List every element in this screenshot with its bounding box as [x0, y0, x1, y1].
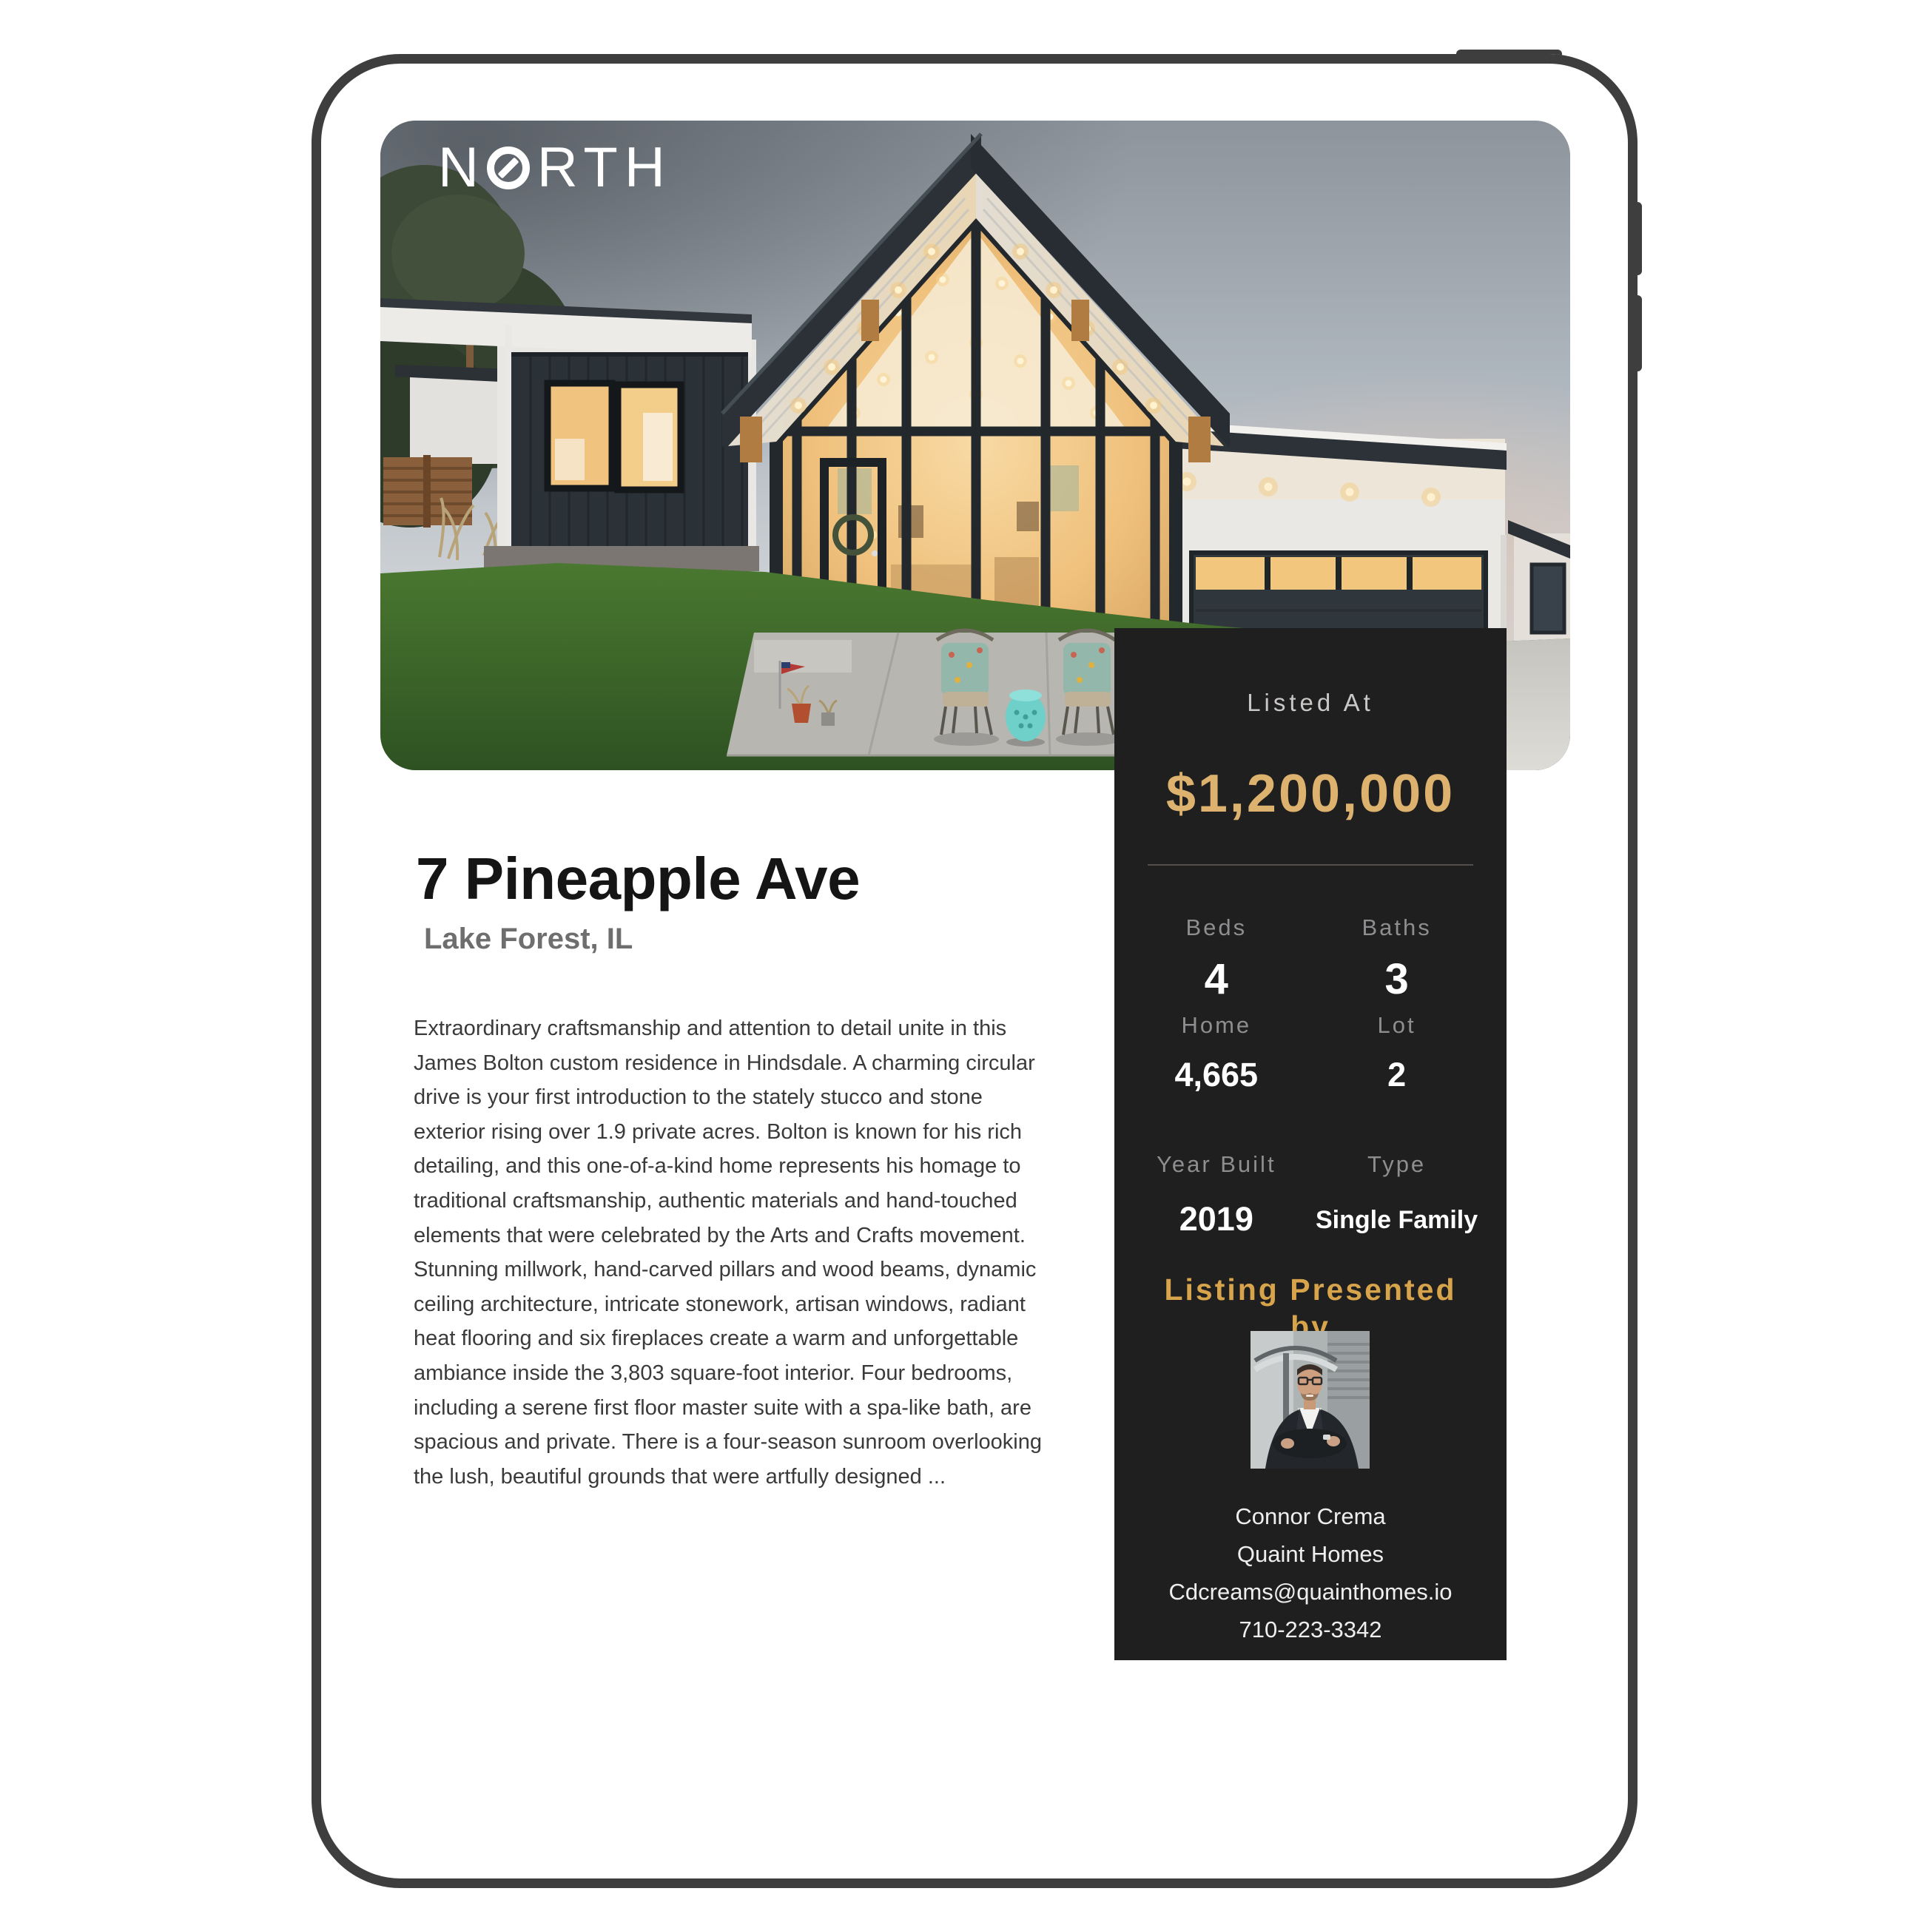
stat-label-lot: Lot — [1302, 1010, 1490, 1041]
stat-value-baths: 3 — [1302, 954, 1490, 1005]
wood-fence — [383, 455, 472, 528]
agent-photo — [1251, 1331, 1370, 1469]
brand-text-suffix: RTH — [537, 140, 672, 196]
listing-details: 7 Pineapple Ave Lake Forest, IL Extraord… — [414, 849, 1109, 1494]
stat-label-baths: Baths — [1302, 912, 1490, 943]
listing-location: Lake Forest, IL — [424, 923, 1109, 955]
stat-value-beds: 4 — [1122, 954, 1310, 1005]
agent-phone: 710-223-3342 — [1114, 1611, 1507, 1648]
stat-value-lot: 2 — [1302, 1055, 1490, 1095]
brand-o-slash-icon — [487, 146, 530, 189]
stat-label-beds: Beds — [1122, 912, 1310, 943]
stat-label-home: Home — [1122, 1010, 1310, 1041]
price-card: Listed At $1,200,000 Beds Baths 4 3 Home… — [1114, 628, 1507, 1660]
agent-email: Cdcreams@quainthomes.io — [1114, 1573, 1507, 1611]
agent-portrait-illustration — [1251, 1331, 1370, 1469]
tablet-screen: NRTH 7 Pineapple Ave Lake Forest, IL Ext… — [312, 54, 1638, 1888]
agent-company: Quaint Homes — [1114, 1535, 1507, 1573]
stat-label-type: Type — [1302, 1149, 1490, 1180]
agent-name: Connor Crema — [1114, 1497, 1507, 1535]
brand-text-prefix: N — [438, 140, 485, 196]
dark-siding-box — [484, 352, 759, 571]
stat-value-year-built: 2019 — [1122, 1199, 1310, 1239]
tablet-device: NRTH 7 Pineapple Ave Lake Forest, IL Ext… — [312, 54, 1638, 1888]
listing-price: $1,200,000 — [1114, 763, 1507, 825]
agent-info: Connor Crema Quaint Homes Cdcreams@quain… — [1114, 1497, 1507, 1648]
stat-value-home: 4,665 — [1122, 1055, 1310, 1095]
card-divider — [1148, 864, 1473, 866]
brand-logo: NRTH — [438, 140, 672, 196]
listed-at-label: Listed At — [1114, 688, 1507, 718]
listing-description: Extraordinary craftsmanship and attentio… — [414, 1011, 1109, 1494]
stat-label-year-built: Year Built — [1122, 1149, 1310, 1180]
stat-value-type: Single Family — [1302, 1202, 1490, 1238]
left-neighbor-building — [395, 365, 515, 464]
listing-title: 7 Pineapple Ave — [416, 849, 1109, 909]
